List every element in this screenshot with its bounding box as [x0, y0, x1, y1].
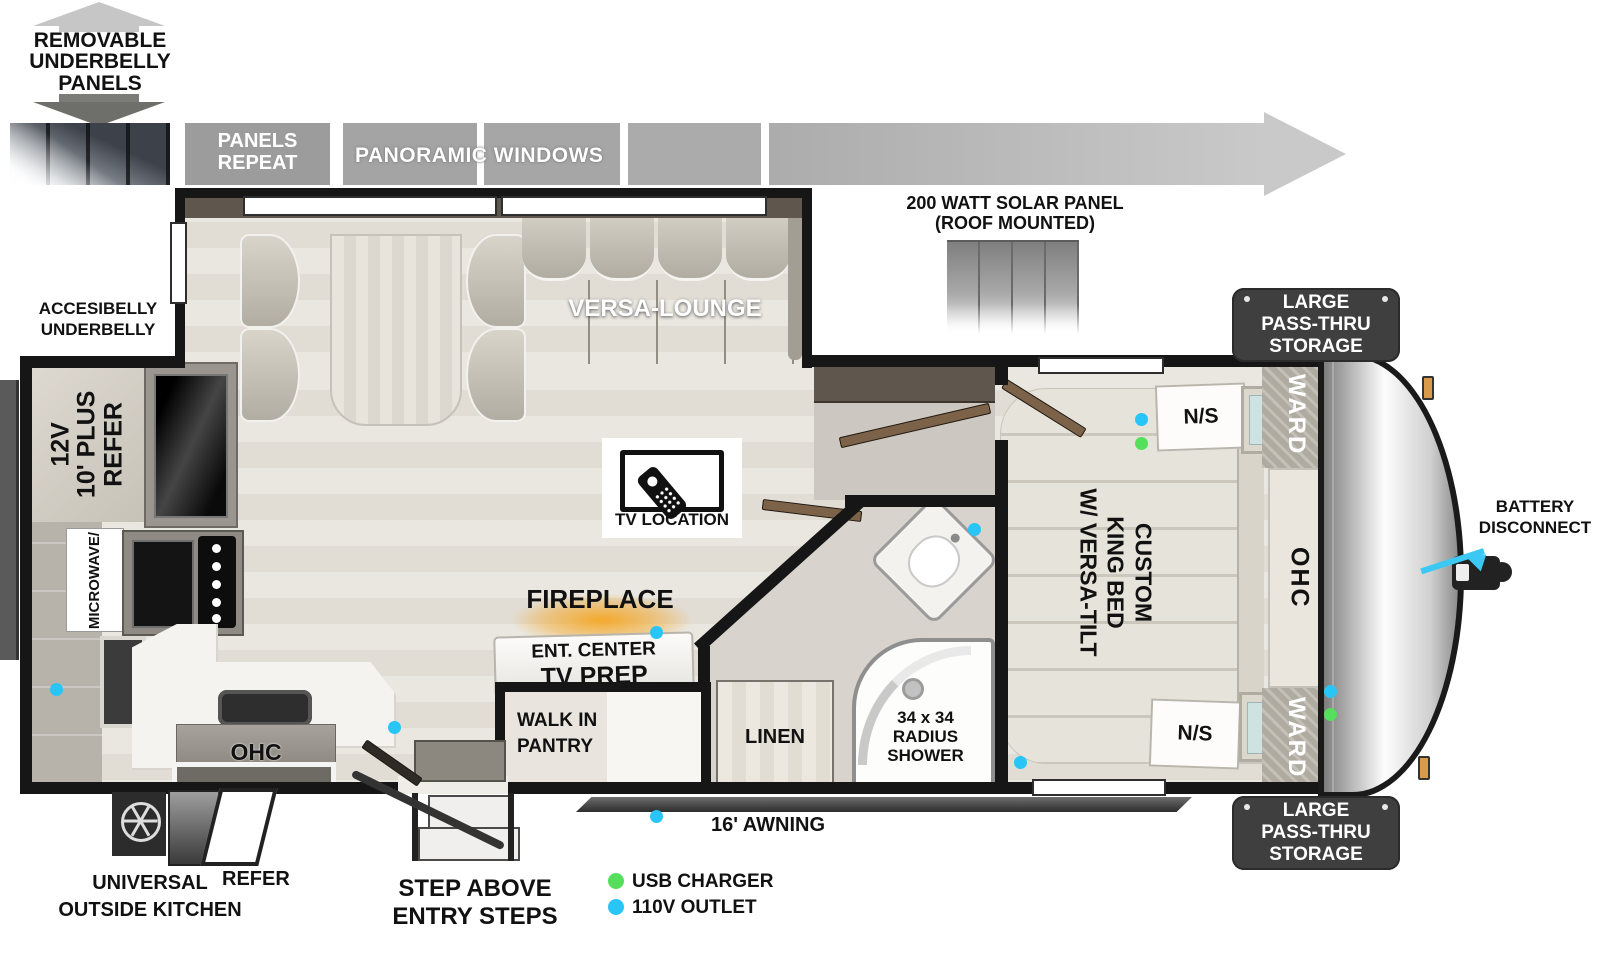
- rivet: [1382, 804, 1388, 810]
- shower-drain: [902, 678, 924, 700]
- refrigerator: [144, 362, 238, 528]
- bedroom-ohc-label: OHC: [1285, 547, 1314, 609]
- panel-strip-fade: [10, 123, 170, 185]
- versa-lounge-sofa: [522, 206, 798, 364]
- hall-counter-band: [814, 367, 995, 403]
- underbelly-callout-text: REMOVABLE UNDERBELLY PANELS: [18, 30, 182, 94]
- dinette-cushion: [240, 328, 300, 422]
- outlet-110v-dot: [1324, 685, 1337, 698]
- wardrobe-bottom-label: WARD: [1282, 697, 1310, 778]
- slideout-window: [501, 196, 767, 216]
- range-stove: [122, 530, 244, 636]
- underbelly-up-arrow-icon: [33, 2, 165, 26]
- slideout-side-window: [170, 222, 187, 304]
- burner-knob: [212, 544, 221, 553]
- legend-outlet-dot: [608, 899, 624, 915]
- rivet: [1244, 804, 1250, 810]
- burner-panel: [198, 536, 236, 628]
- burner-knob: [212, 562, 221, 571]
- sofa-armrest: [788, 210, 802, 360]
- front-cap: [1318, 352, 1464, 798]
- bed-label: CUSTOM KING BED W/ VERSA-TILT: [1028, 448, 1203, 698]
- kitchen-top-wall: [20, 356, 180, 368]
- tv-location-label: TV LOCATION: [602, 510, 742, 530]
- outlet-110v-dot: [1014, 756, 1027, 769]
- dinette-table: [330, 234, 462, 426]
- rivet: [1382, 296, 1388, 302]
- underbelly-down-arrow-stem: [59, 94, 139, 102]
- radius-shower: 34 x 34 RADIUS SHOWER: [852, 638, 995, 788]
- outlet-110v-dot: [388, 721, 401, 734]
- cap-marker-light: [1418, 756, 1430, 780]
- legend-usb-dot: [608, 873, 624, 889]
- bathroom-top-wall: [845, 495, 1005, 507]
- rivet: [1244, 296, 1250, 302]
- pantry-label-line2: PANTRY: [517, 736, 593, 758]
- awning-label: 16' AWNING: [688, 814, 848, 837]
- underbelly-panel-strip: [10, 123, 170, 185]
- nightstand-bottom-label: N/S: [1177, 721, 1213, 746]
- cap-seam: [1332, 358, 1334, 792]
- refer-label: 12V 10' PLUS REFER: [48, 390, 127, 497]
- remote-button: [645, 474, 659, 488]
- burner-knob: [212, 598, 221, 607]
- outside-kitchen-fan-box: [112, 792, 166, 856]
- dinette-cushion: [466, 328, 526, 422]
- burner-knob: [212, 580, 221, 589]
- legend-outlet-label: 110V OUTLET: [632, 897, 757, 919]
- awning-bar: [576, 797, 1192, 812]
- outlet-110v-dot: [968, 523, 981, 536]
- floorplan-diagram: REMOVABLE UNDERBELLY PANELS PANELS REPEA…: [0, 0, 1600, 974]
- solar-panel-graphic: [947, 240, 1079, 334]
- shower-label: 34 x 34 RADIUS SHOWER: [862, 708, 989, 766]
- panoramic-windows-label: PANORAMIC WINDOWS: [355, 144, 635, 168]
- solar-panel-callout: 200 WATT SOLAR PANEL (ROOF MOUNTED): [865, 194, 1165, 234]
- rear-exterior-strip: [0, 380, 19, 660]
- walk-in-pantry: WALK IN PANTRY: [495, 682, 711, 794]
- solar-panel-fade: [947, 304, 1079, 334]
- pantry-label-line1: WALK IN: [517, 710, 597, 732]
- outlet-110v-dot: [650, 810, 663, 823]
- panels-repeat-box: PANELS REPEAT: [185, 123, 330, 185]
- pass-thru-storage-bottom: LARGE PASS-THRU STORAGE: [1232, 796, 1400, 870]
- linen-cabinet: LINEN: [716, 680, 834, 794]
- refrigerator-door: [154, 374, 228, 518]
- refer-label-box: 12V 10' PLUS REFER: [30, 366, 144, 522]
- legend-usb-label: USB CHARGER: [632, 871, 773, 893]
- pass-thru-storage-top: LARGE PASS-THRU STORAGE: [1232, 288, 1400, 362]
- accesibelly-callout: ACCESIBELLY UNDERBELLY: [18, 298, 178, 341]
- bedroom-bottom-window: [1032, 779, 1166, 796]
- versa-lounge-label: VERSA-LOUNGE: [530, 295, 800, 323]
- rear-wall: [20, 356, 32, 794]
- fan-icon: [121, 802, 161, 842]
- outside-refer-label: REFER: [222, 868, 302, 891]
- microwave-label: MICROWAVE/: [87, 531, 104, 628]
- dinette-cushion: [240, 234, 300, 328]
- dinette-bench-left: [236, 232, 302, 422]
- fireplace-label: FIREPLACE: [520, 584, 680, 615]
- outlet-110v-dot: [50, 683, 63, 696]
- burner-knob: [212, 614, 221, 623]
- bedroom-top-window: [1038, 357, 1164, 374]
- nightstand-top: N/S: [1155, 382, 1247, 451]
- main-bottom-wall-right: [508, 782, 1332, 794]
- window-strip-segment: [769, 123, 1264, 185]
- bedroom-left-wall-stub: [995, 367, 1008, 385]
- entry-step-well: [414, 740, 506, 782]
- usb-charger-dot: [1135, 437, 1148, 450]
- dinette-cushion: [466, 234, 526, 328]
- oven-door: [132, 540, 194, 628]
- nightstand-top-label: N/S: [1183, 404, 1219, 429]
- battery-disconnect-callout: BATTERY DISCONNECT: [1470, 496, 1600, 539]
- wardrobe-top-label: WARD: [1282, 374, 1310, 455]
- slideout-right-wall: [802, 188, 812, 368]
- tv-location-box: TV LOCATION: [602, 438, 742, 538]
- bathroom-pantry-joint-wall: [698, 646, 710, 690]
- dinette-bench-right: [460, 232, 526, 422]
- window-strip-segment: [628, 123, 761, 185]
- bedroom-left-wall: [995, 440, 1008, 788]
- step-rail: [508, 793, 514, 861]
- microwave-label-box: MICROWAVE/: [66, 528, 124, 632]
- outlet-110v-dot: [1135, 413, 1148, 426]
- linen-label: LINEN: [718, 726, 832, 749]
- kitchen-sink: [218, 690, 312, 726]
- cap-marker-light: [1422, 376, 1434, 400]
- steps-callout: STEP ABOVE ENTRY STEPS: [385, 875, 565, 932]
- nightstand-bottom: N/S: [1149, 698, 1241, 769]
- window-strip-arrowhead-icon: [1264, 112, 1346, 196]
- slideout-window: [243, 196, 497, 216]
- outlet-110v-dot: [650, 626, 663, 639]
- usb-charger-dot: [1324, 708, 1337, 721]
